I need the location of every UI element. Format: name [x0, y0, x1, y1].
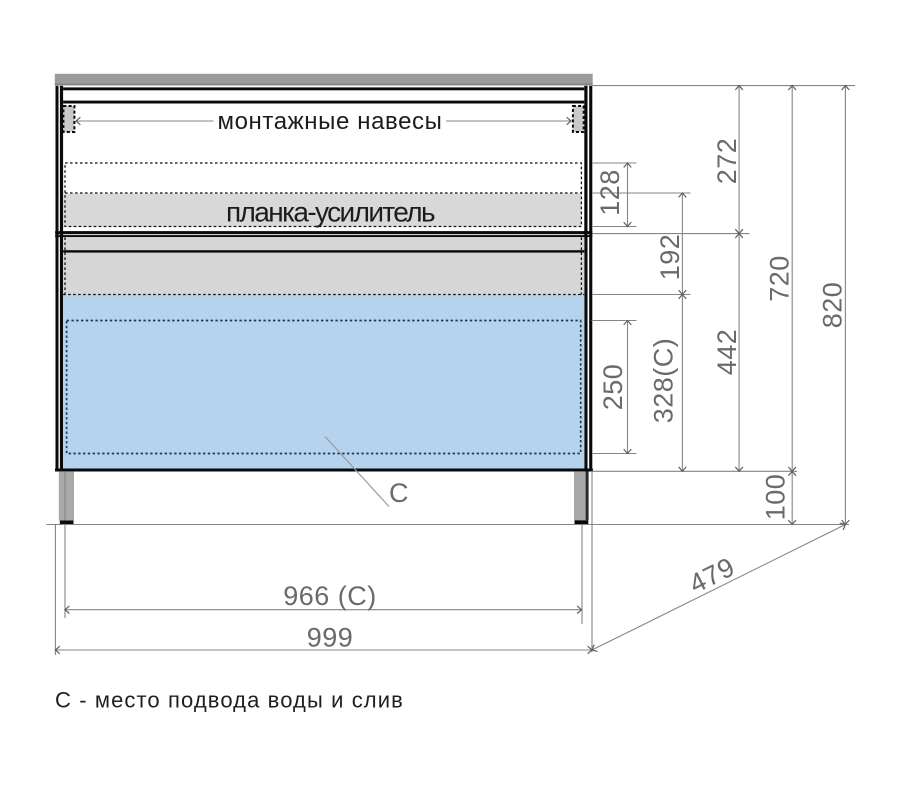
svg-text:966 (С): 966 (С): [283, 581, 377, 611]
svg-text:планка-усилитель: планка-усилитель: [226, 196, 435, 227]
svg-text:442: 442: [712, 329, 742, 376]
svg-text:272: 272: [712, 138, 742, 185]
svg-text:192: 192: [655, 234, 685, 281]
svg-text:С - место подвода воды и слив: С - место подвода воды и слив: [55, 687, 404, 712]
svg-text:820: 820: [817, 282, 847, 329]
svg-text:999: 999: [307, 623, 354, 653]
svg-text:128: 128: [595, 169, 625, 216]
svg-text:328(С): 328(С): [649, 338, 679, 424]
svg-text:С: С: [389, 478, 409, 508]
svg-text:250: 250: [598, 364, 628, 411]
svg-text:720: 720: [764, 255, 794, 302]
svg-text:монтажные навесы: монтажные навесы: [217, 108, 442, 135]
svg-text:100: 100: [761, 474, 791, 521]
